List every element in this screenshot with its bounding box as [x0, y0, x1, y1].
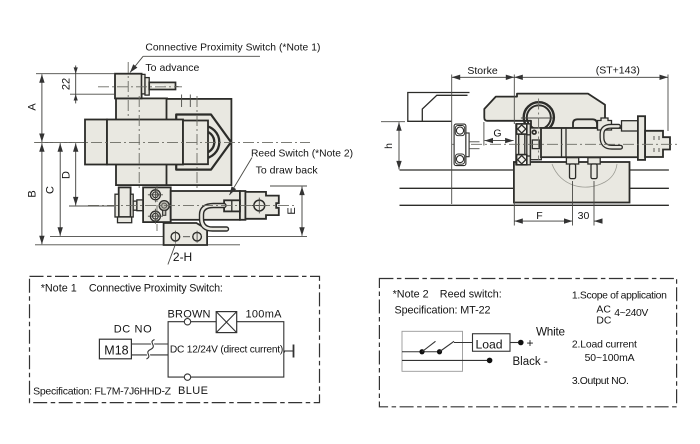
svg-text:h: h — [383, 143, 395, 149]
svg-text:BROWN: BROWN — [168, 309, 211, 321]
svg-text:+: + — [527, 336, 534, 350]
svg-text:Load: Load — [476, 337, 503, 351]
svg-text:3.Output NO.: 3.Output NO. — [572, 376, 629, 387]
svg-text:Connective Proximity Switch:: Connective Proximity Switch: — [89, 282, 223, 294]
svg-text:(ST+143): (ST+143) — [596, 64, 640, 76]
svg-text:*Note 1: *Note 1 — [41, 282, 77, 294]
svg-text:AC: AC — [596, 305, 611, 316]
svg-text:B: B — [27, 190, 39, 197]
svg-text:BLUE: BLUE — [178, 385, 208, 397]
svg-text:C: C — [45, 186, 57, 194]
svg-text:50~100mA: 50~100mA — [585, 353, 635, 364]
svg-text:G: G — [493, 128, 501, 140]
svg-text:D: D — [61, 171, 73, 179]
svg-text:Connective Proximity Switch (*: Connective Proximity Switch (*Note 1) — [145, 42, 320, 53]
svg-text:2-H: 2-H — [173, 250, 192, 264]
svg-text:1.Scope of application: 1.Scope of application — [572, 291, 667, 302]
svg-text:30: 30 — [578, 210, 590, 222]
svg-text:DC NO: DC NO — [114, 324, 152, 336]
svg-text:Storke: Storke — [467, 65, 498, 77]
svg-text:M18: M18 — [104, 343, 128, 357]
svg-text:4~240V: 4~240V — [614, 308, 648, 319]
svg-text:A: A — [27, 103, 39, 111]
svg-text:DC: DC — [596, 315, 612, 326]
svg-text:To draw back: To draw back — [256, 165, 319, 177]
svg-text:Reed Switch (*Note 2): Reed Switch (*Note 2) — [251, 149, 353, 160]
svg-text:*Note 2: *Note 2 — [393, 289, 429, 301]
svg-text:2.Load current: 2.Load current — [572, 340, 637, 351]
svg-text:To advance: To advance — [145, 62, 199, 74]
svg-text:Specification: MT-22: Specification: MT-22 — [395, 304, 491, 316]
svg-text:White: White — [536, 325, 565, 338]
svg-text:Black -: Black - — [513, 356, 548, 368]
svg-text:DC 12/24V (direct current).: DC 12/24V (direct current). — [170, 345, 286, 356]
svg-text:Reed switch:: Reed switch: — [440, 289, 502, 301]
svg-text:F: F — [536, 210, 542, 222]
svg-text:22: 22 — [61, 78, 73, 90]
svg-text:E: E — [286, 207, 298, 214]
svg-text:100mA: 100mA — [246, 309, 283, 321]
svg-text:Specification: FL7M-7J6HHD-Z: Specification: FL7M-7J6HHD-Z — [33, 386, 172, 398]
